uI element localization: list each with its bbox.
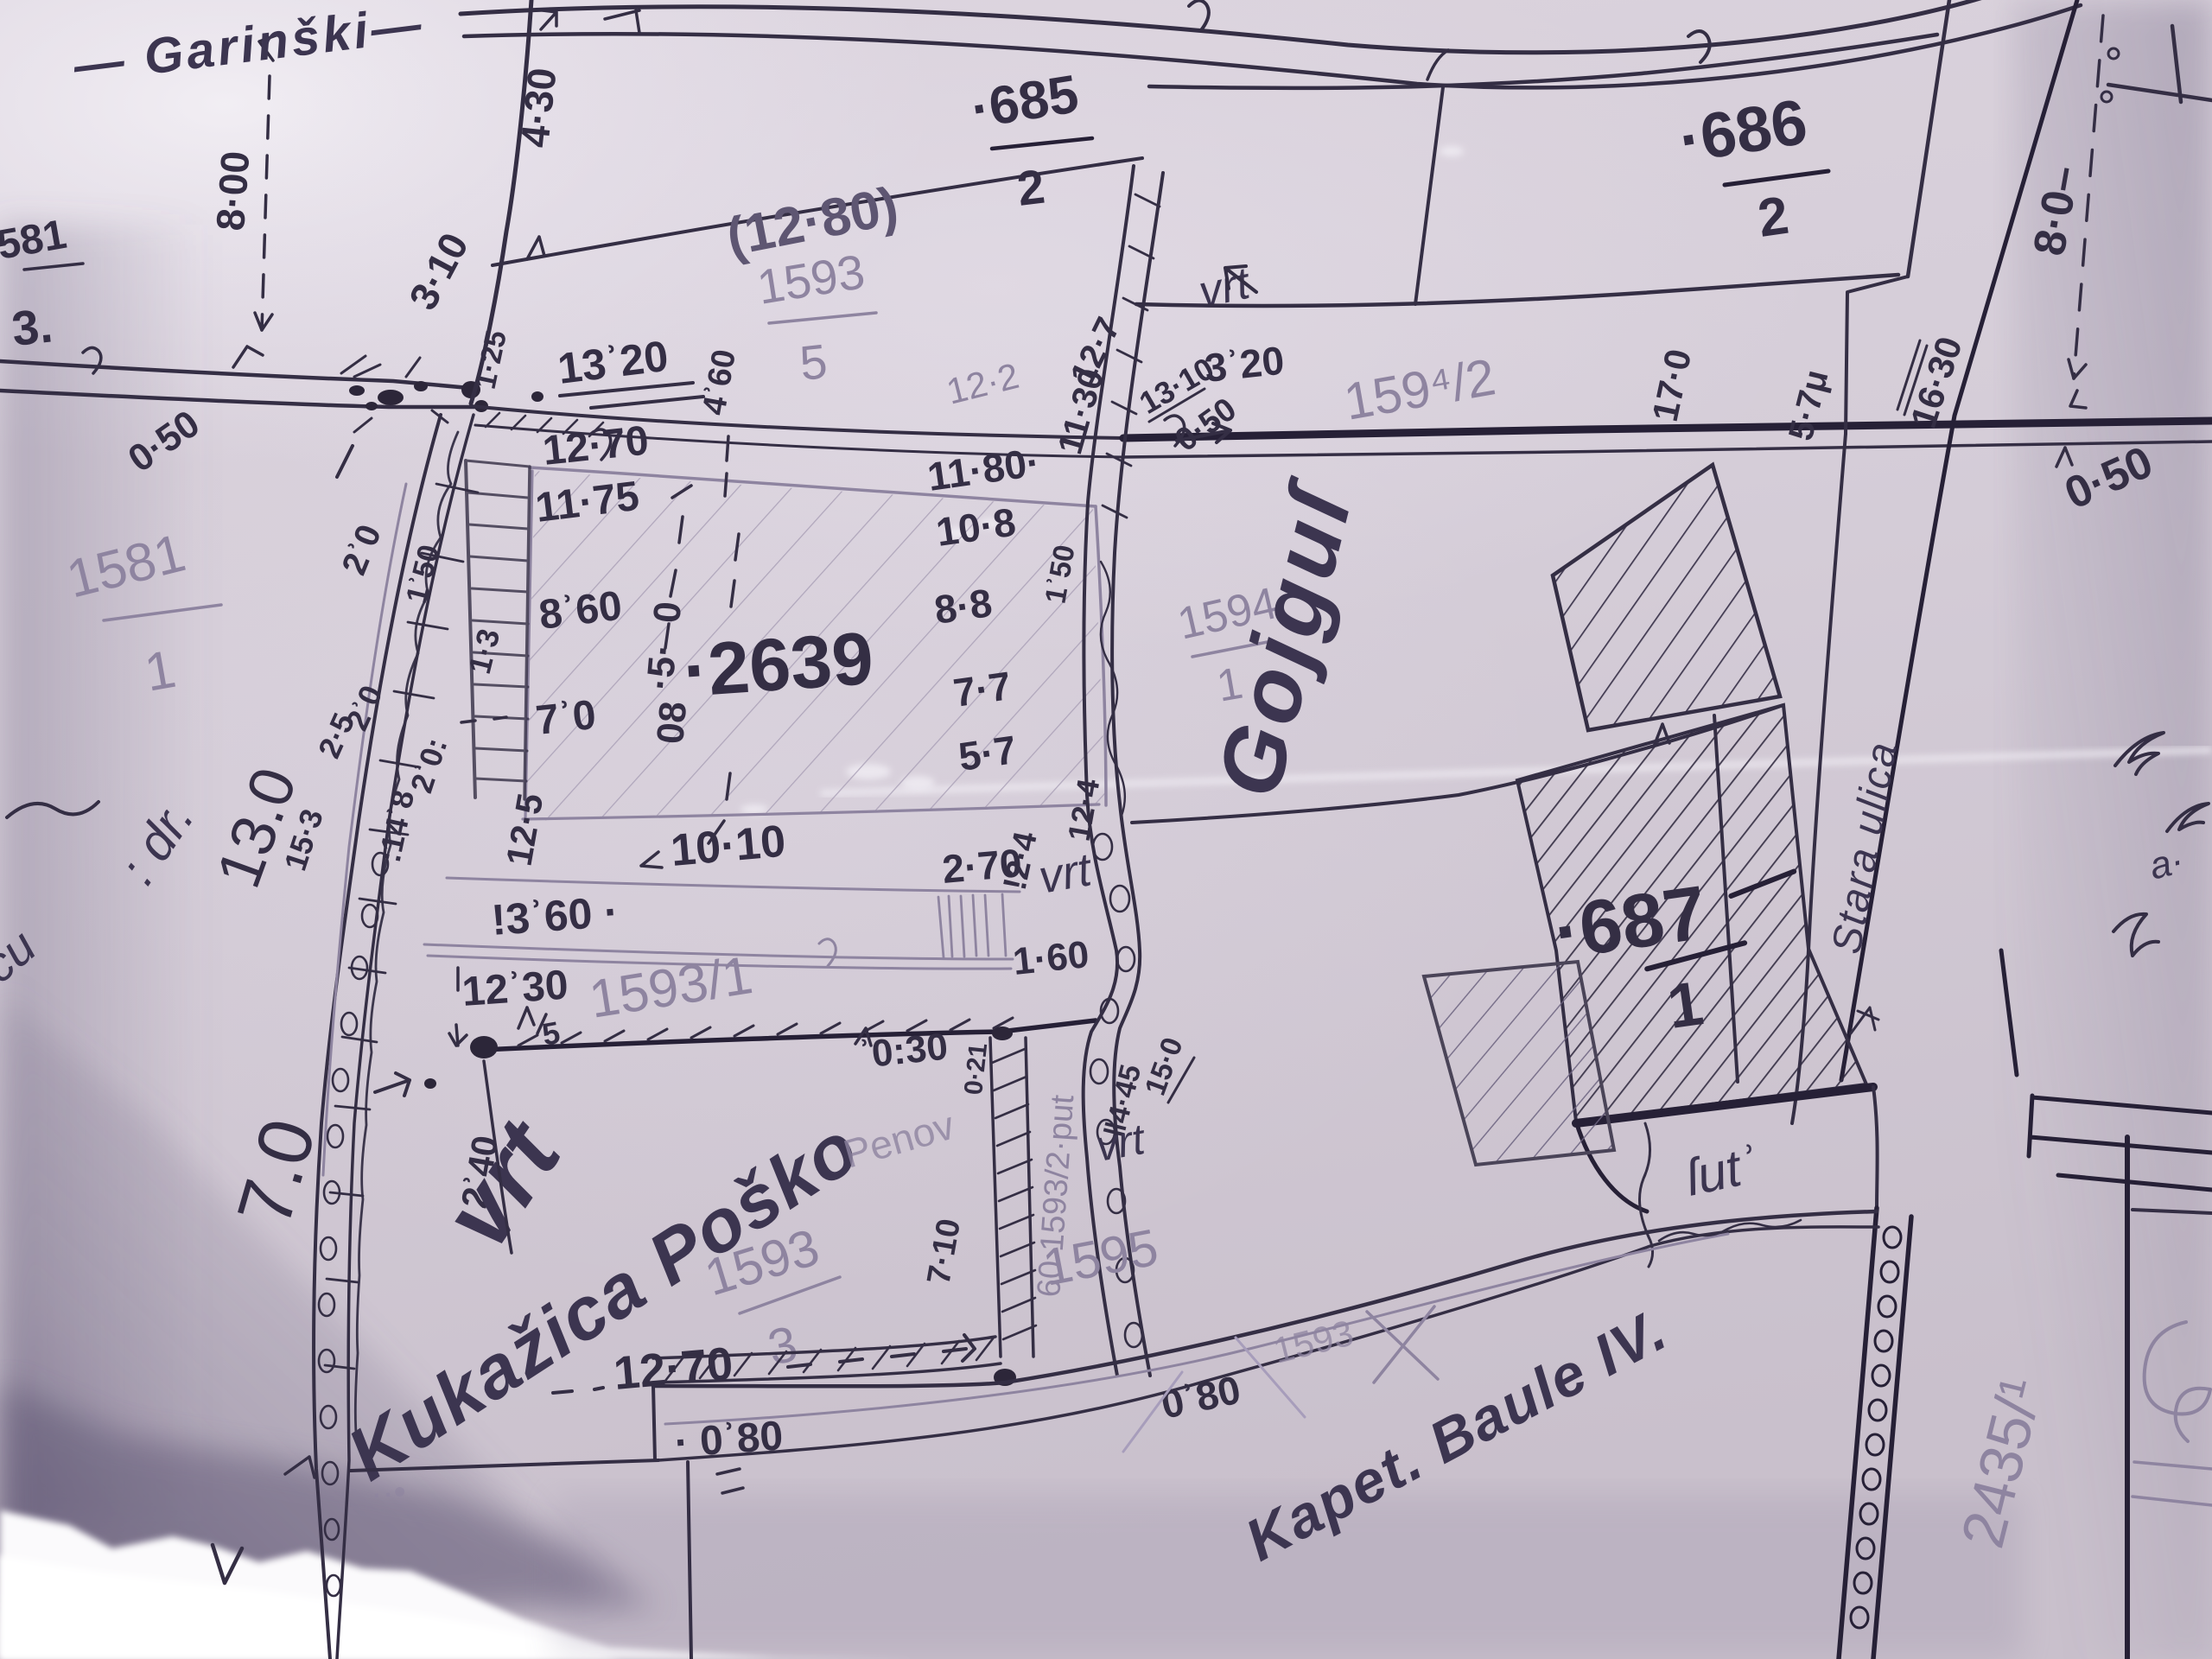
svg-text:12ʾ30: 12ʾ30 <box>461 963 569 1015</box>
svg-text:4·30: 4·30 <box>512 66 564 149</box>
svg-text:!3ʾ60 ·: !3ʾ60 · <box>490 887 620 944</box>
svg-text:1·60: 1·60 <box>1011 933 1091 983</box>
svg-text:7·7: 7·7 <box>950 663 1014 715</box>
svg-text:8·8: 8·8 <box>931 580 995 632</box>
svg-text:10·10: 10·10 <box>669 817 788 876</box>
svg-text:0·21: 0·21 <box>959 1042 993 1096</box>
svg-text:0: 0 <box>645 600 690 625</box>
svg-text:· 0ʾ80: · 0ʾ80 <box>673 1413 785 1466</box>
svg-text:··•: ··• <box>370 1472 408 1513</box>
svg-text:·5·: ·5· <box>639 642 685 692</box>
svg-text:·2639: ·2639 <box>681 617 876 713</box>
svg-text:3.: 3. <box>10 297 55 356</box>
svg-text:5·7: 5·7 <box>956 727 1019 779</box>
svg-text:vrt: vrt <box>1035 843 1096 904</box>
svg-text:7ʾ0: 7ʾ0 <box>534 692 599 744</box>
svg-text:8·00: 8·00 <box>207 149 257 232</box>
svg-text:5: 5 <box>798 334 830 391</box>
